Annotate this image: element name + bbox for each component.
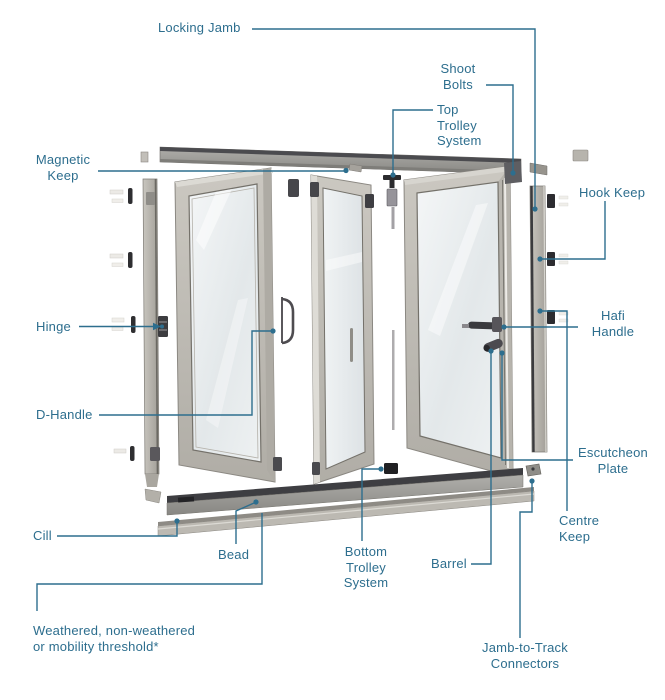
track-fixing-piece: [573, 150, 588, 161]
top-trolley-part: [383, 175, 401, 229]
label-cill: Cill: [33, 528, 52, 544]
label-bead: Bead: [218, 547, 249, 563]
hook-keep-part: [547, 194, 568, 208]
trolley-hardware: [383, 175, 401, 474]
label-locking-jamb: Locking Jamb: [158, 20, 241, 36]
label-hafi-handle: Hafi Handle: [580, 308, 646, 339]
leader-magnetic-keep: [98, 168, 349, 173]
jamb-to-track-connector-bottom: [526, 464, 541, 476]
hinge-bracket: [273, 457, 282, 471]
label-barrel: Barrel: [431, 556, 467, 572]
cill-end-cap: [145, 489, 161, 503]
label-shoot-bolts: Shoot Bolts: [430, 61, 486, 92]
label-escutcheon-plate: Escutcheon Plate: [572, 445, 654, 476]
label-magnetic-keep: Magnetic Keep: [30, 152, 96, 183]
hinge-bracket: [312, 462, 320, 475]
d-handle-part: [282, 297, 293, 343]
shoot-bolt-bracket: [310, 182, 319, 197]
label-d-handle: D-Handle: [36, 407, 93, 423]
bifold-door-parts-diagram: Locking Jamb Shoot Bolts Top Trolley Sys…: [0, 0, 665, 700]
shoot-bolt-rod: [392, 330, 395, 430]
label-jamb-to-track-connectors: Jamb-to-Track Connectors: [478, 640, 572, 671]
hinge-set: [114, 446, 135, 461]
hinge-hardware-column: [110, 188, 136, 461]
label-hook-keep: Hook Keep: [579, 185, 645, 201]
track-end-cap: [141, 152, 148, 162]
label-hinge: Hinge: [36, 319, 71, 335]
label-bottom-trolley-system: Bottom Trolley System: [342, 544, 390, 591]
jamb-to-track-connector-top: [530, 163, 547, 175]
door-panel-2: [310, 175, 374, 484]
left-jamb: [143, 179, 168, 503]
hinge-set: [110, 252, 133, 268]
diagram-canvas: [0, 0, 665, 700]
door-panel-3: [404, 161, 522, 477]
label-threshold: Weathered, non-weathered or mobility thr…: [33, 623, 201, 654]
glass-pane: [323, 188, 365, 469]
bottom-trolley-part: [384, 463, 398, 474]
glass-pane: [417, 182, 501, 458]
hinge-set: [110, 188, 133, 204]
jamb-foot: [145, 474, 159, 487]
door-panel-1: [175, 168, 299, 482]
hinge-part: [150, 447, 160, 461]
label-centre-keep: Centre Keep: [559, 513, 611, 544]
locking-jamb-bar: [530, 186, 547, 452]
keep-clip: [146, 192, 155, 205]
flush-bolt: [350, 328, 353, 362]
centre-keep-part: [547, 310, 568, 324]
hinge-set: [112, 316, 136, 333]
shoot-bolt-bracket: [288, 179, 299, 197]
glass-pane: [189, 184, 261, 462]
hinge-bracket: [365, 194, 374, 208]
label-top-trolley-system: Top Trolley System: [437, 102, 491, 149]
